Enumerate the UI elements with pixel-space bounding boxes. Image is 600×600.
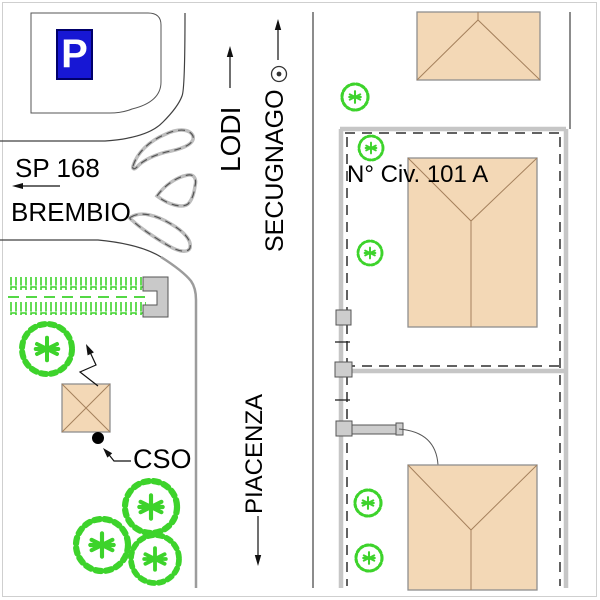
cso-leader: [92, 432, 131, 461]
street-label-secugnago: SECUGNAGO: [263, 89, 288, 252]
direction-arrow-secugnago: [275, 19, 281, 60]
gate-arc: [399, 429, 438, 465]
site-plan-map: P SP 168 BREMBIO LODI SECUGNAGO PIACENZA…: [0, 0, 600, 600]
wall-end-bracket: [143, 277, 168, 317]
small-building-cso: [62, 384, 110, 432]
hedge-row: [8, 277, 168, 317]
road-label-sp168: SP 168: [15, 155, 100, 181]
parking-area-outline: [31, 13, 161, 113]
parking-sign-icon: P: [56, 29, 93, 80]
cso-point-icon: [92, 432, 104, 444]
boundary-post: [336, 310, 351, 325]
street-label-piacenza: PIACENZA: [243, 394, 267, 514]
cso-label: CSO: [133, 446, 192, 473]
street-label-lodi: LODI: [217, 107, 245, 172]
wall-segment: [350, 425, 398, 434]
boundary-post: [336, 421, 352, 436]
boundary-post: [335, 362, 352, 377]
zigzag-leader-arrow: [80, 344, 98, 386]
map-drawing: [0, 0, 600, 600]
road-label-brembio: BREMBIO: [11, 199, 131, 225]
traffic-islands: [130, 130, 196, 251]
buildings: [62, 12, 540, 590]
direction-arrow-sp168: [12, 183, 60, 189]
building-bottom-right: [408, 465, 537, 590]
direction-arrow-lodi: [227, 46, 233, 88]
direction-arrow-piacenza: [255, 516, 261, 566]
civic-number-label: N° Civ. 101 A: [347, 163, 488, 187]
building-top-right: [417, 12, 540, 80]
survey-point-icon: [272, 67, 287, 82]
